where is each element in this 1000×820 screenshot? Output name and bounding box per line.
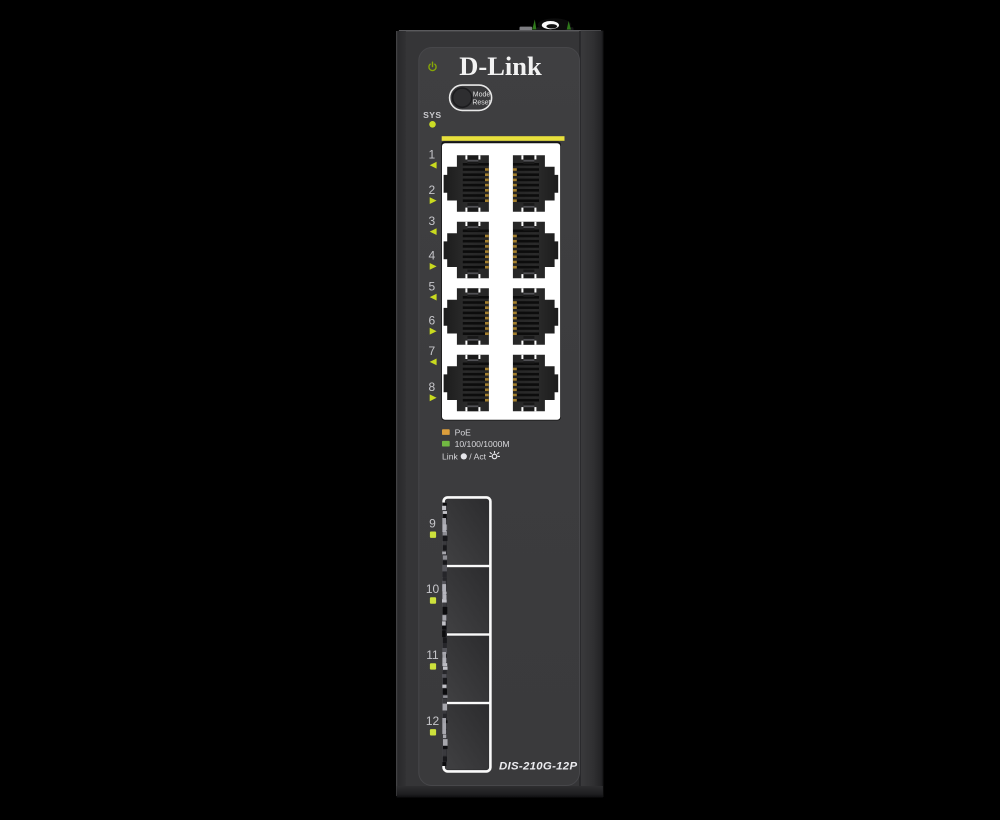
svg-text:10/100/1000M: 10/100/1000M [455,439,510,449]
svg-text:7: 7 [428,344,435,358]
svg-text:6: 6 [428,314,435,328]
svg-text:12: 12 [426,714,440,728]
svg-text:8: 8 [428,380,435,394]
svg-text:D-Link: D-Link [459,51,542,81]
svg-text:4: 4 [428,249,435,263]
svg-text:Reset: Reset [472,100,490,107]
svg-text:SYS: SYS [423,110,441,120]
svg-text:Mode: Mode [473,92,491,99]
svg-text:PoE: PoE [455,428,472,438]
svg-text:1: 1 [428,148,435,162]
svg-text:Link: Link [442,451,458,461]
svg-text:10: 10 [426,582,440,596]
svg-text:2: 2 [428,183,435,197]
svg-text:/ Act: / Act [469,451,486,461]
svg-text:11: 11 [426,648,439,662]
svg-text:DIS-210G-12P: DIS-210G-12P [499,760,577,772]
svg-text:5: 5 [428,279,435,293]
svg-text:9: 9 [429,516,436,530]
svg-text:3: 3 [428,214,435,228]
